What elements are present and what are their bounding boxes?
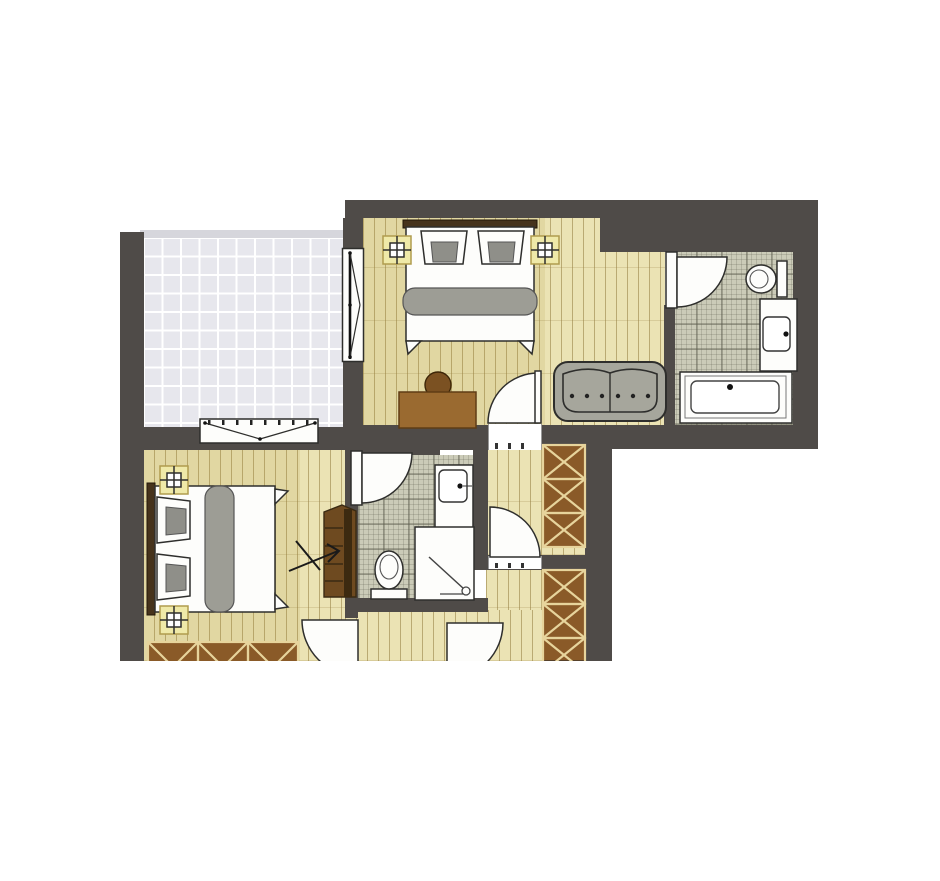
threshold-upper-door (488, 424, 542, 450)
wall-window-jamb-bottom (343, 359, 363, 427)
wall-bath-lower-top (345, 443, 440, 455)
wall-window-jamb-top (343, 218, 363, 251)
floor-corridor (345, 610, 585, 661)
plan-crop-mask (0, 661, 940, 881)
wall-bath-lower-bottom (345, 598, 488, 612)
floor-terrace (143, 237, 345, 428)
wall-terrace-bottom (140, 427, 345, 450)
wall-bottom-upper-right (540, 425, 818, 449)
wall-top (345, 200, 620, 218)
wall-right-upper (793, 252, 818, 427)
terrace-edge (140, 230, 346, 238)
wall-top-right-block (600, 200, 818, 252)
wall-right-lower (585, 443, 612, 661)
floor-tint-bedroom-upper (363, 216, 545, 427)
wall-divider-bed-bath-upper (664, 305, 675, 427)
wall-bath-lower-right (473, 443, 488, 557)
wall-bath-lower-left (345, 443, 358, 618)
floor-plan (0, 0, 940, 881)
threshold-hall-door (488, 556, 542, 569)
floor-tint-bedroom-lower (143, 448, 300, 661)
terrace-window (343, 249, 364, 362)
floor-bathroom-lower (358, 455, 473, 600)
floor-bathroom-upper (671, 252, 793, 425)
